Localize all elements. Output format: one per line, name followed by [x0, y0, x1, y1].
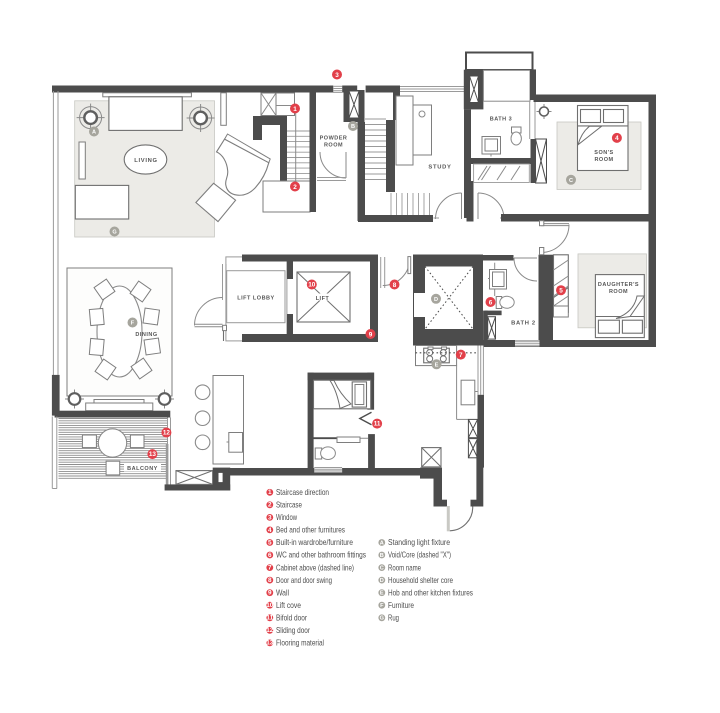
svg-text:DINING: DINING: [135, 332, 157, 338]
svg-text:BATH 2: BATH 2: [511, 321, 536, 327]
svg-text:Bifold door: Bifold door: [276, 614, 307, 623]
svg-text:5: 5: [268, 539, 272, 546]
svg-text:Staircase: Staircase: [276, 501, 302, 510]
svg-text:SON'S: SON'S: [594, 150, 613, 156]
svg-text:9: 9: [369, 331, 373, 338]
svg-text:8: 8: [268, 577, 272, 584]
svg-text:C: C: [380, 566, 384, 572]
svg-text:5: 5: [559, 288, 563, 295]
svg-text:ROOM: ROOM: [594, 157, 613, 163]
svg-text:7: 7: [268, 565, 272, 572]
svg-text:1: 1: [268, 489, 272, 496]
svg-text:DAUGHTER'S: DAUGHTER'S: [598, 282, 639, 288]
svg-text:BALCONY: BALCONY: [127, 466, 158, 472]
svg-text:LIFT: LIFT: [316, 296, 330, 302]
svg-text:D: D: [434, 297, 438, 303]
svg-text:Rug: Rug: [388, 614, 399, 623]
svg-text:11: 11: [374, 421, 381, 428]
svg-text:STUDY: STUDY: [428, 165, 451, 171]
svg-text:Staircase direction: Staircase direction: [276, 488, 329, 497]
svg-text:LIVING: LIVING: [134, 158, 158, 164]
svg-text:F: F: [380, 603, 384, 609]
svg-text:Cabinet above (dashed line): Cabinet above (dashed line): [276, 563, 354, 572]
svg-text:13: 13: [266, 640, 274, 647]
svg-text:Built-in wardrobe/furniture: Built-in wardrobe/furniture: [276, 538, 353, 547]
svg-text:Hob and other kitchen fixtures: Hob and other kitchen fixtures: [388, 588, 473, 597]
svg-text:Door and door swing: Door and door swing: [276, 576, 332, 585]
svg-text:ROOM: ROOM: [324, 143, 343, 149]
svg-text:Standing light fixture: Standing light fixture: [388, 538, 450, 547]
svg-text:12: 12: [266, 627, 274, 634]
svg-text:Flooring material: Flooring material: [276, 639, 324, 648]
svg-text:Bed and other furnitures: Bed and other furnitures: [276, 526, 345, 535]
svg-text:10: 10: [308, 282, 316, 289]
svg-text:1: 1: [293, 106, 297, 113]
svg-text:10: 10: [266, 602, 274, 609]
svg-text:2: 2: [293, 184, 297, 191]
svg-text:Furniture: Furniture: [388, 601, 414, 610]
svg-text:Window: Window: [276, 513, 297, 522]
svg-text:A: A: [380, 540, 384, 546]
svg-text:B: B: [351, 124, 355, 130]
svg-text:6: 6: [268, 552, 272, 559]
svg-text:4: 4: [615, 135, 619, 142]
svg-text:C: C: [569, 178, 573, 184]
svg-text:POWDER: POWDER: [320, 136, 348, 142]
svg-text:13: 13: [149, 451, 157, 458]
svg-text:3: 3: [268, 514, 272, 521]
svg-text:3: 3: [335, 72, 339, 79]
svg-text:G: G: [112, 230, 116, 236]
svg-text:D: D: [380, 578, 384, 584]
svg-text:A: A: [92, 130, 96, 136]
svg-text:Wall: Wall: [276, 588, 289, 597]
svg-text:11: 11: [266, 615, 273, 622]
svg-text:Lift cove: Lift cove: [276, 601, 301, 610]
svg-text:F: F: [131, 321, 135, 327]
svg-text:B: B: [380, 553, 384, 559]
svg-text:Void/Core (dashed "X"): Void/Core (dashed "X"): [388, 551, 451, 560]
svg-text:WC and other bathroom fittings: WC and other bathroom fittings: [276, 551, 366, 560]
svg-text:4: 4: [268, 527, 272, 534]
svg-text:2: 2: [268, 502, 272, 509]
svg-text:E: E: [380, 591, 384, 597]
svg-text:G: G: [380, 616, 384, 622]
svg-text:7: 7: [459, 352, 463, 359]
svg-text:9: 9: [268, 590, 272, 597]
svg-text:6: 6: [489, 299, 493, 306]
svg-text:E: E: [435, 362, 439, 368]
svg-text:ROOM: ROOM: [609, 289, 628, 295]
svg-text:BATH 3: BATH 3: [490, 117, 512, 123]
svg-text:8: 8: [393, 282, 397, 289]
svg-text:Room name: Room name: [388, 563, 421, 572]
svg-text:Sliding door: Sliding door: [276, 626, 310, 635]
svg-text:Household shelter core: Household shelter core: [388, 576, 453, 585]
svg-text:12: 12: [163, 430, 171, 437]
svg-text:LIFT LOBBY: LIFT LOBBY: [237, 295, 274, 301]
